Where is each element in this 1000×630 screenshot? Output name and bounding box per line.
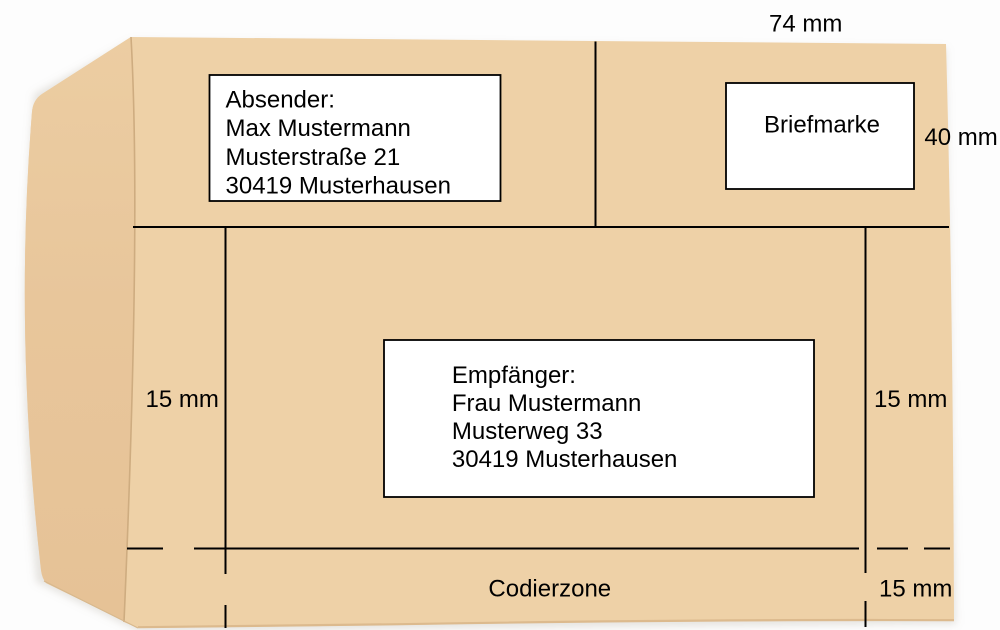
svg-text:15 mm: 15 mm — [146, 386, 219, 413]
svg-text:Frau Mustermann: Frau Mustermann — [452, 390, 641, 417]
svg-text:30419 Musterhausen: 30419 Musterhausen — [226, 173, 452, 200]
svg-text:Codierzone: Codierzone — [488, 576, 611, 603]
svg-text:15 mm: 15 mm — [879, 576, 952, 603]
svg-text:Musterweg 33: Musterweg 33 — [452, 418, 603, 445]
svg-text:15 mm: 15 mm — [874, 386, 947, 413]
svg-text:Musterstraße 21: Musterstraße 21 — [226, 144, 401, 171]
svg-text:74 mm: 74 mm — [769, 11, 842, 38]
svg-text:30419 Musterhausen: 30419 Musterhausen — [452, 446, 678, 473]
svg-text:Absender:: Absender: — [226, 86, 335, 113]
svg-text:Briefmarke: Briefmarke — [764, 111, 880, 138]
svg-text:Max Mustermann: Max Mustermann — [226, 115, 411, 142]
svg-text:Empfänger:: Empfänger: — [452, 362, 576, 389]
svg-text:40 mm: 40 mm — [924, 124, 997, 151]
